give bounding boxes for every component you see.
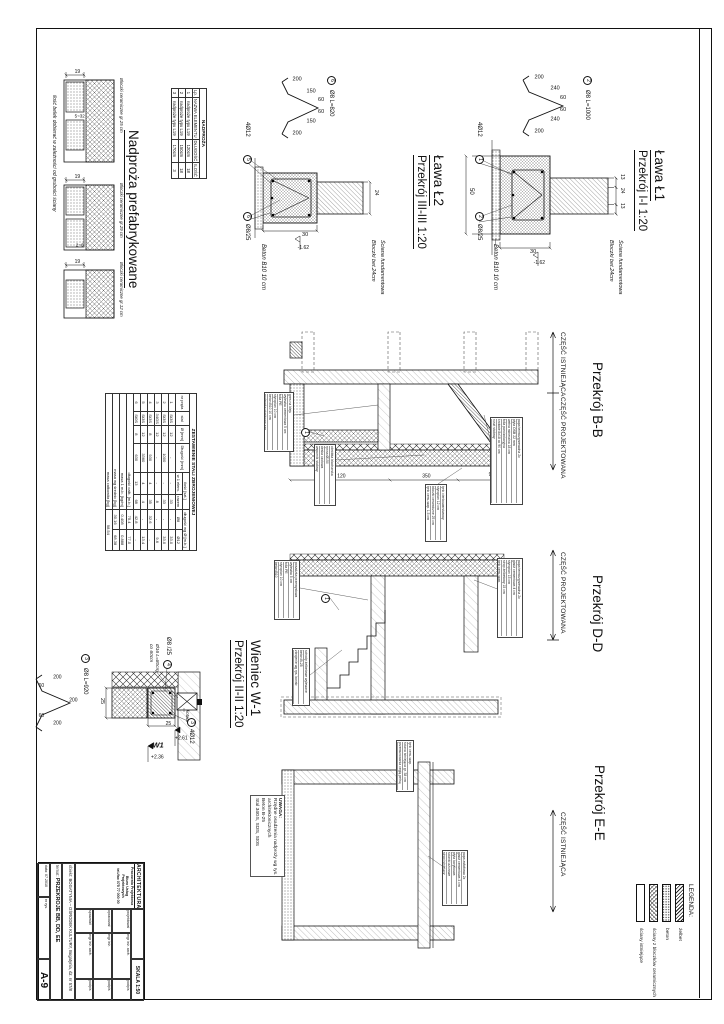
table-cell: 2 [162, 394, 169, 412]
nadproza-table: NADPROŻA Lp. NAZWA ELEMENTU DŁUGOŚĆ ILOŚ… [171, 88, 207, 179]
annotation-line: obróbka blacharska [329, 446, 334, 504]
table-cell: 33.0 [162, 530, 169, 551]
bar-mark-circle: 6 [327, 76, 336, 85]
table-title: ZESTAWIENIE STALI ZBROJENIOWEJ [190, 394, 197, 551]
company-logo: ARCHITEKTURA Pracownia Projektowa Biuro … [75, 863, 144, 909]
uwaga-line: Rzędne osadzenia nadproży wg rys. [271, 798, 277, 874]
annotation-block: posadzka przemysłowawylewka 5 cmfolia PE… [274, 560, 300, 620]
annotation-line: gładź cementowa 3 cm [456, 852, 461, 904]
company-sub: Pracownia Projektowa [129, 864, 133, 908]
rebar-mark-circle: 5 [243, 155, 252, 164]
table-cell: St3S [169, 412, 176, 426]
summary-label: masa całkowita [kg] [106, 394, 113, 510]
table-cell: - [162, 509, 169, 530]
summary-label: masa wg średnic [kg] [113, 394, 120, 510]
col-header: Ø8 [176, 509, 183, 530]
uwaga-note: UWAGA: Rzędne osadzenia nadproży wg rys.… [250, 795, 285, 877]
table-cell: 12 [141, 426, 148, 443]
annotation-block: papa asfaltowa 2xgładź cementowa 3 cmpły… [442, 850, 468, 906]
table-cell: 33 [169, 494, 176, 509]
summary-value: 77.0 [127, 530, 134, 551]
table-cell: 32.6 [148, 509, 155, 530]
table-cell: 3360 [141, 443, 148, 472]
col-header: nr pręta [176, 394, 190, 412]
rebar-mark-circle: 1 [475, 155, 484, 164]
annotation-block: papa termozgrzewalna 2xgładź cementowa 4… [497, 558, 523, 638]
drawing-number: A-9 [37, 959, 50, 1001]
annotation-line: folia PE [283, 562, 288, 618]
table-cell: 4 [148, 394, 155, 412]
section-mark-circle: 1 [301, 428, 310, 437]
temat-label: temat: [55, 865, 60, 877]
table-row: 3nadproże typu L19170cm3 [172, 89, 179, 179]
table-cell: 120cm [186, 139, 193, 163]
bar-mark-circle: 3 [81, 654, 90, 663]
summary-label: masa 1 m.b. [kg/m] [120, 394, 127, 510]
table-cell: nadproże typu L19 [186, 97, 193, 139]
table-cell: 13 [134, 473, 141, 495]
annotation-line: posadzka przemysłowa [293, 562, 298, 618]
uwaga-line: architektonicznych [265, 798, 271, 874]
table-cell: 5 [141, 394, 148, 412]
summary-value: 75.4 [127, 509, 134, 530]
table-cell: 1 [186, 89, 193, 98]
date-value: 07.2010 [44, 874, 48, 887]
col-header: stal [176, 412, 190, 426]
table-row: 2nadproże typu L19150cm18 [179, 89, 186, 179]
table-cell: nadproże typu L19 [179, 97, 186, 139]
table-cell: 9.6 [155, 530, 162, 551]
table-cell: 930 [148, 443, 155, 472]
table-cell: nadproże typu L19 [172, 97, 179, 139]
table-cell: 170cm [172, 139, 179, 163]
table-cell: 150cm [179, 139, 186, 163]
bar-mark-circle: 2 [583, 76, 592, 85]
annotation-line: ścianki ażurowe [446, 852, 451, 904]
table-cell: 1000 [162, 443, 169, 472]
table-cell: - [141, 509, 148, 530]
annotation-block: schody żelbetowe wylewanebeton B-25zbroj… [292, 648, 310, 706]
table-cell: 42.8 [134, 509, 141, 530]
table-row: 2St3S121000-33-33.0 [162, 394, 169, 551]
annotation-line: przemurowania cegłą pełną [397, 742, 402, 790]
role-label: opracował [93, 909, 112, 933]
table-cell: 8 [148, 426, 155, 443]
role-signature: podpis [93, 979, 112, 1001]
role-name: mgr inż. [93, 933, 112, 979]
date-label: data: [44, 865, 48, 873]
table-cell: 12 [155, 426, 162, 443]
title-block: ARCHITEKTURA Pracownia Projektowa Biuro … [38, 862, 145, 1000]
annotation-line: płyta g-k 12.5 mm [490, 419, 491, 503]
table-cell: 12 [169, 426, 176, 443]
stirrup-mark-circle: 6 [243, 212, 252, 221]
annotation-block: gres na klejuwylewka cementowa 5 cmfolia… [264, 392, 294, 452]
annotation-line: ściana istniejąca gr. 38 cm [402, 742, 407, 790]
annotation-line: beton B10 [274, 562, 278, 618]
annotation-block: papa termozgrzewalna 2xpłyta OSB 22 mmwe… [490, 417, 523, 505]
annotation-line: folia PE [277, 394, 282, 450]
table-cell: 18 [179, 163, 186, 179]
role-label: projektował [112, 909, 131, 933]
summary-value: 98.54 [106, 509, 113, 550]
annotation-line: zbrojenie wg rys. konstr. [293, 650, 298, 704]
col-header: razem [176, 494, 183, 509]
annotation-line: papa asfaltowa 2x [461, 852, 466, 904]
table-cell: 12 [162, 426, 169, 443]
col-header: Ø [mm] [176, 426, 190, 443]
annotation-line: krokwie 8x18 co 90 cm [496, 419, 501, 503]
table-cell: 33 [162, 494, 169, 509]
uwaga-line: UWAGA: [277, 798, 283, 874]
temat-value: PRZEKROJE BB, DD, EE [54, 878, 60, 942]
role-signature: podpis [75, 979, 93, 1001]
col-header: długość wg Ø [m.b.] [183, 509, 190, 550]
role-signature: podpis [112, 979, 131, 1001]
annotation-block: tynk cienkowarstwowystyropian 12 cmblocz… [425, 484, 447, 542]
annotation-line: folia paroizolacyjna [501, 419, 506, 503]
annotation-line: beton B10 10 cm [267, 394, 272, 450]
col-header: DŁUGOŚĆ [193, 139, 200, 163]
table-cell: - [148, 530, 155, 551]
table-cell: - [155, 443, 162, 472]
table-row: 1St3S12--33-33.0 [169, 394, 176, 551]
drawing-sheet: Ława Ł1 Przekrój I-I 1:20 2 Ø8 L=1000 20… [0, 0, 724, 1024]
table-cell: St3S [148, 412, 155, 426]
table-cell: 3 [172, 163, 179, 179]
col-header: w 1 elem. [176, 473, 183, 495]
annotation-line: wełna mineralna 18 cm [506, 419, 511, 503]
annotation-line: styropian 15 cm [506, 560, 511, 636]
annotation-line: tynk cienkowarstwowy [440, 486, 445, 540]
annotation-line: tynk cem.-wap. [497, 560, 501, 636]
uwaga-line: Stal 34GS, St3S, St0S [253, 798, 259, 874]
annotation-line: podsypka piaskowa zag. [264, 394, 267, 450]
table-cell: 4 [148, 473, 155, 495]
annotation-line: schody żelbetowe wylewane [303, 650, 308, 704]
table-row: 5St3S12336044-13.4 [141, 394, 148, 551]
stirrup-mark-circle: 4 [163, 660, 172, 669]
col-header: ilość [szt.] [183, 473, 190, 510]
scale-cell: SKALA 1:50 [131, 959, 144, 1001]
drawing-number-label: nr rys. [44, 899, 48, 909]
annotation-line: wylewka 5 cm [288, 562, 293, 618]
table-cell: 4 [141, 494, 148, 509]
annotation-line: styropian 12 cm [435, 486, 440, 540]
annotation-line: papa termozgrzewalna 2x [516, 560, 521, 636]
obiekt-value: BOGATYNIA – OŚRODEK KULTURY, Bogatynia, … [68, 879, 73, 991]
annotation-line: beton B-25 [298, 650, 303, 704]
date-cell: data: 07.2010 [37, 863, 50, 897]
scanned-drawing-page: { "titles": { "l1_name": "Ława Ł1", "l1_… [0, 0, 724, 1024]
table-cell: 33.0 [169, 530, 176, 551]
summary-row: długość całk. [m.b.]75.477.0 [127, 394, 134, 551]
table-cell: St3S [141, 412, 148, 426]
table-cell: 3 [155, 394, 162, 412]
table-row: 4St3S893043532.6- [148, 394, 155, 551]
summary-value: 0.408 [120, 509, 127, 530]
table-row: 6St0S8630136842.8- [134, 394, 141, 551]
role-label: sprawdził [75, 909, 93, 933]
table-cell: 3 [172, 89, 179, 98]
role-name: mgr inż. arch. [112, 933, 131, 979]
table-cell: 4 [141, 473, 148, 495]
obiekt-row: obiekt: BOGATYNIA – OŚRODEK KULTURY, Bog… [62, 863, 75, 1001]
summary-row: masa wg średnic [kg]30.1668.38 [113, 394, 120, 551]
stirrup-mark-circle: 2 [475, 212, 484, 221]
table-cell: St3S [162, 412, 169, 426]
table-cell: 13.4 [141, 530, 148, 551]
role-name: mgr inż. arch. [75, 933, 93, 979]
obiekt-label: obiekt: [68, 865, 73, 877]
drawing-number-label-cell: nr rys. [37, 897, 50, 959]
summary-value: 68.38 [113, 530, 120, 551]
table-cell: - [169, 443, 176, 472]
annotation-line: płyta OSB 22 mm [511, 419, 516, 503]
annotation-line: gładź cementowa 4 cm [511, 560, 516, 636]
steel-schedule-table: ZESTAWIENIE STALI ZBROJENIOWEJ nr pręta … [105, 393, 197, 551]
col-header: ILOŚĆ [193, 163, 200, 179]
company-name: ARCHITEKTURA [134, 864, 141, 908]
annotation-block: tynk cem.-wap.ściana istniejąca gr. 38 c… [396, 740, 414, 792]
summary-label: długość całk. [m.b.] [127, 394, 134, 510]
annotation-line: ruszt stalowy [491, 419, 496, 503]
annotation-block: obróbka blacharskarynna Ø150deska czołow… [314, 444, 336, 506]
table-cell: St0S [134, 412, 141, 426]
summary-row: masa 1 m.b. [kg/m]0.4080.888 [120, 394, 127, 551]
annotation-line: gres na kleju [287, 394, 292, 450]
annotation-line: strop żelbetowy 15 cm [501, 560, 506, 636]
table-cell: - [134, 530, 141, 551]
rebar-mark-circle: 3 [187, 718, 196, 727]
table-cell: 2 [179, 89, 186, 98]
summary-row: masa całkowita [kg]98.54 [106, 394, 113, 551]
section-mark-circle: 1 [321, 594, 330, 603]
col-header: Ø12 [176, 530, 183, 551]
table-cell: - [169, 473, 176, 495]
annotation-line: płyta korytkowa [451, 852, 456, 904]
table-cell: 34GS [155, 412, 162, 426]
table-cell: 630 [134, 443, 141, 472]
table-cell: 35 [148, 494, 155, 509]
summary-value: 0.888 [120, 530, 127, 551]
table-cell: - [169, 509, 176, 530]
table-cell: 8 [155, 494, 162, 509]
table-row: 1nadproże typu L19120cm18 [186, 89, 193, 179]
annotation-line: tynk cem.-wap. 1.5 cm [425, 486, 430, 540]
summary-value: 30.16 [113, 509, 120, 530]
annotation-line: rynna Ø150 [324, 446, 329, 504]
annotation-line: papa termozgrzewalna 2x [516, 419, 521, 503]
uwaga-line: Beton B-25 [259, 798, 265, 874]
col-header: NAZWA ELEMENTU [193, 97, 200, 139]
annotation-line: styropian 10 cm [272, 394, 277, 450]
table-title: NADPROŻA [200, 89, 207, 179]
col-header: Lp. [193, 89, 200, 98]
table-cell: 8 [134, 426, 141, 443]
annotation-line: bloczki ceramiczne 25 cm [430, 486, 435, 540]
temat-row: temat: PRZEKROJE BB, DD, EE [50, 863, 62, 1001]
annotation-line: wspornik stalowy [314, 446, 319, 504]
table-cell: 1 [169, 394, 176, 412]
empty-cell [131, 909, 144, 959]
company-sub: Biuro Usług Projektowych [120, 864, 129, 908]
table-cell: 6 [134, 394, 141, 412]
col-header: Długość [mm] [176, 443, 190, 472]
annotation-line: strop istniejący [442, 852, 446, 904]
table-cell: 18 [186, 163, 193, 179]
annotation-line: wylewka cementowa 5 cm [282, 394, 287, 450]
annotation-line: tynk cem.-wap. [407, 742, 412, 790]
table-cell: 68 [134, 494, 141, 509]
annotation-line: deska czołowa [319, 446, 324, 504]
table-row: 334GS12--8-9.6 [155, 394, 162, 551]
annotation-line: styropian 10 cm [278, 562, 283, 618]
company-sub: tel./fax 075 77 000 00 [116, 864, 120, 908]
table-cell: - [155, 509, 162, 530]
table-cell: - [162, 473, 169, 495]
table-cell: - [155, 473, 162, 495]
